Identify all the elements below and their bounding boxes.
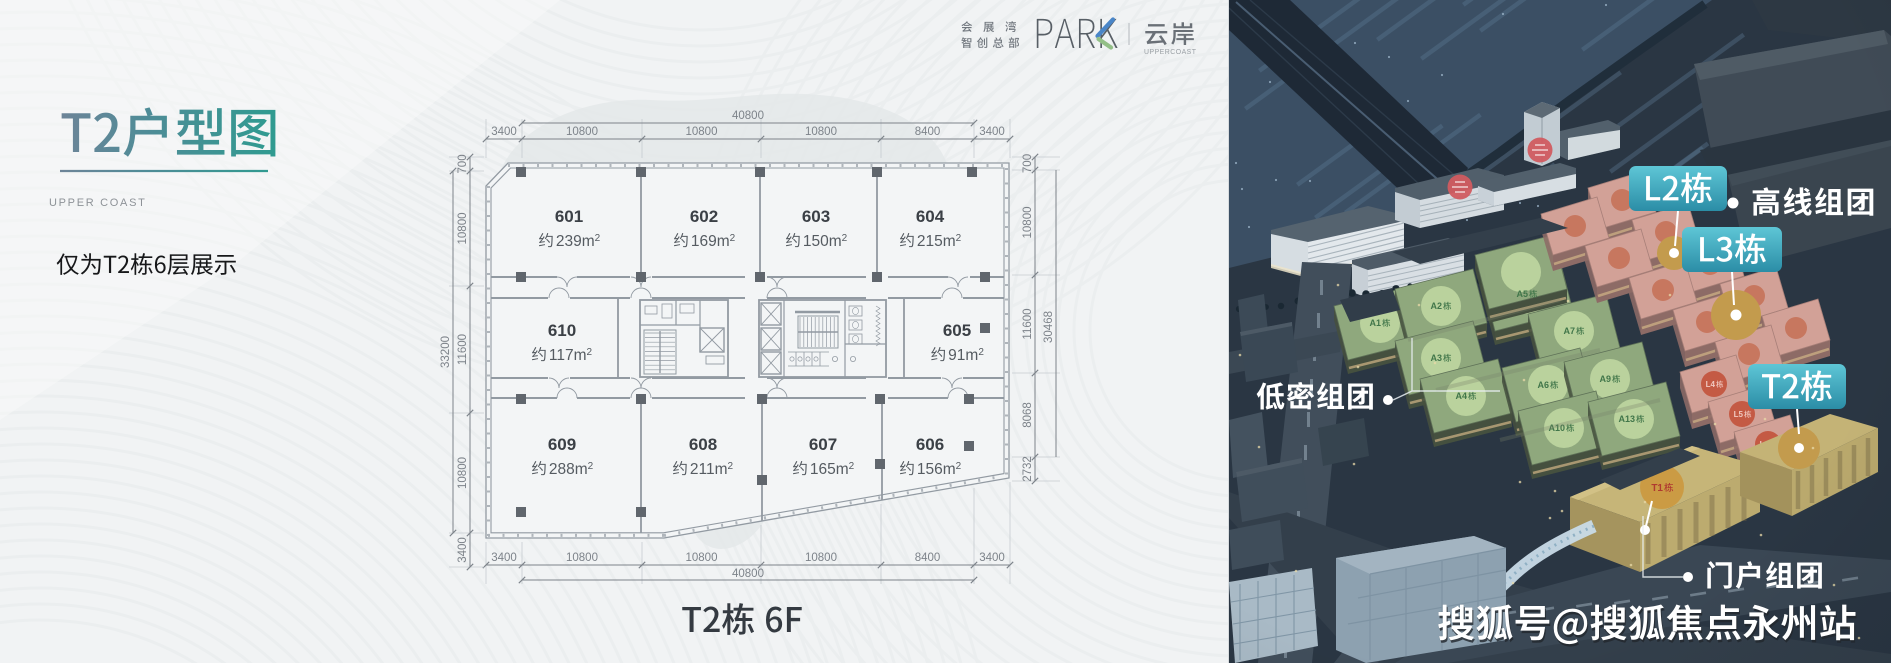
svg-text:33200: 33200 xyxy=(440,336,452,368)
svg-text:10800: 10800 xyxy=(457,457,469,489)
svg-text:10800: 10800 xyxy=(1022,207,1034,239)
svg-text:117m2: 117m2 xyxy=(549,347,593,364)
svg-text:605: 605 xyxy=(943,321,971,340)
svg-text:608: 608 xyxy=(689,435,717,454)
svg-text:10800: 10800 xyxy=(686,552,718,564)
svg-text:601: 601 xyxy=(555,207,583,226)
svg-text:607: 607 xyxy=(809,435,837,454)
svg-text:215m2: 215m2 xyxy=(917,233,962,250)
svg-text:UPPERCOAST: UPPERCOAST xyxy=(1144,49,1197,56)
svg-text:10800: 10800 xyxy=(566,126,598,138)
svg-text:165m2: 165m2 xyxy=(810,461,855,478)
svg-text:10800: 10800 xyxy=(457,213,469,245)
svg-text:10800: 10800 xyxy=(686,126,718,138)
svg-text:10800: 10800 xyxy=(805,126,837,138)
svg-text:8400: 8400 xyxy=(915,126,941,138)
svg-text:30468: 30468 xyxy=(1043,311,1055,343)
svg-text:40800: 40800 xyxy=(732,568,764,580)
svg-text:604: 604 xyxy=(916,207,945,226)
svg-text:11600: 11600 xyxy=(1022,308,1034,339)
svg-text:602: 602 xyxy=(690,207,718,226)
svg-text:169m2: 169m2 xyxy=(691,233,736,250)
svg-text:609: 609 xyxy=(548,435,576,454)
svg-text:UPPER COAST: UPPER COAST xyxy=(49,197,147,209)
svg-text:3400: 3400 xyxy=(491,552,517,564)
svg-text:150m2: 150m2 xyxy=(803,233,848,250)
svg-text:40800: 40800 xyxy=(732,110,764,122)
svg-text:3400: 3400 xyxy=(457,537,469,563)
svg-text:239m2: 239m2 xyxy=(556,233,601,250)
svg-text:3400: 3400 xyxy=(979,126,1005,138)
svg-text:700: 700 xyxy=(1022,154,1034,173)
svg-text:3400: 3400 xyxy=(979,552,1005,564)
svg-text:288m2: 288m2 xyxy=(549,461,594,478)
svg-text:10800: 10800 xyxy=(805,552,837,564)
svg-text:3400: 3400 xyxy=(491,126,517,138)
svg-text:603: 603 xyxy=(802,207,830,226)
svg-text:10800: 10800 xyxy=(566,552,598,564)
svg-text:156m2: 156m2 xyxy=(917,461,962,478)
svg-text:211m2: 211m2 xyxy=(690,461,734,478)
svg-text:700: 700 xyxy=(457,154,469,173)
svg-text:2732: 2732 xyxy=(1022,456,1034,482)
svg-text:610: 610 xyxy=(548,321,576,340)
svg-text:606: 606 xyxy=(916,435,944,454)
svg-text:8400: 8400 xyxy=(915,552,941,564)
svg-text:8068: 8068 xyxy=(1022,402,1034,428)
svg-text:11600: 11600 xyxy=(457,334,469,365)
